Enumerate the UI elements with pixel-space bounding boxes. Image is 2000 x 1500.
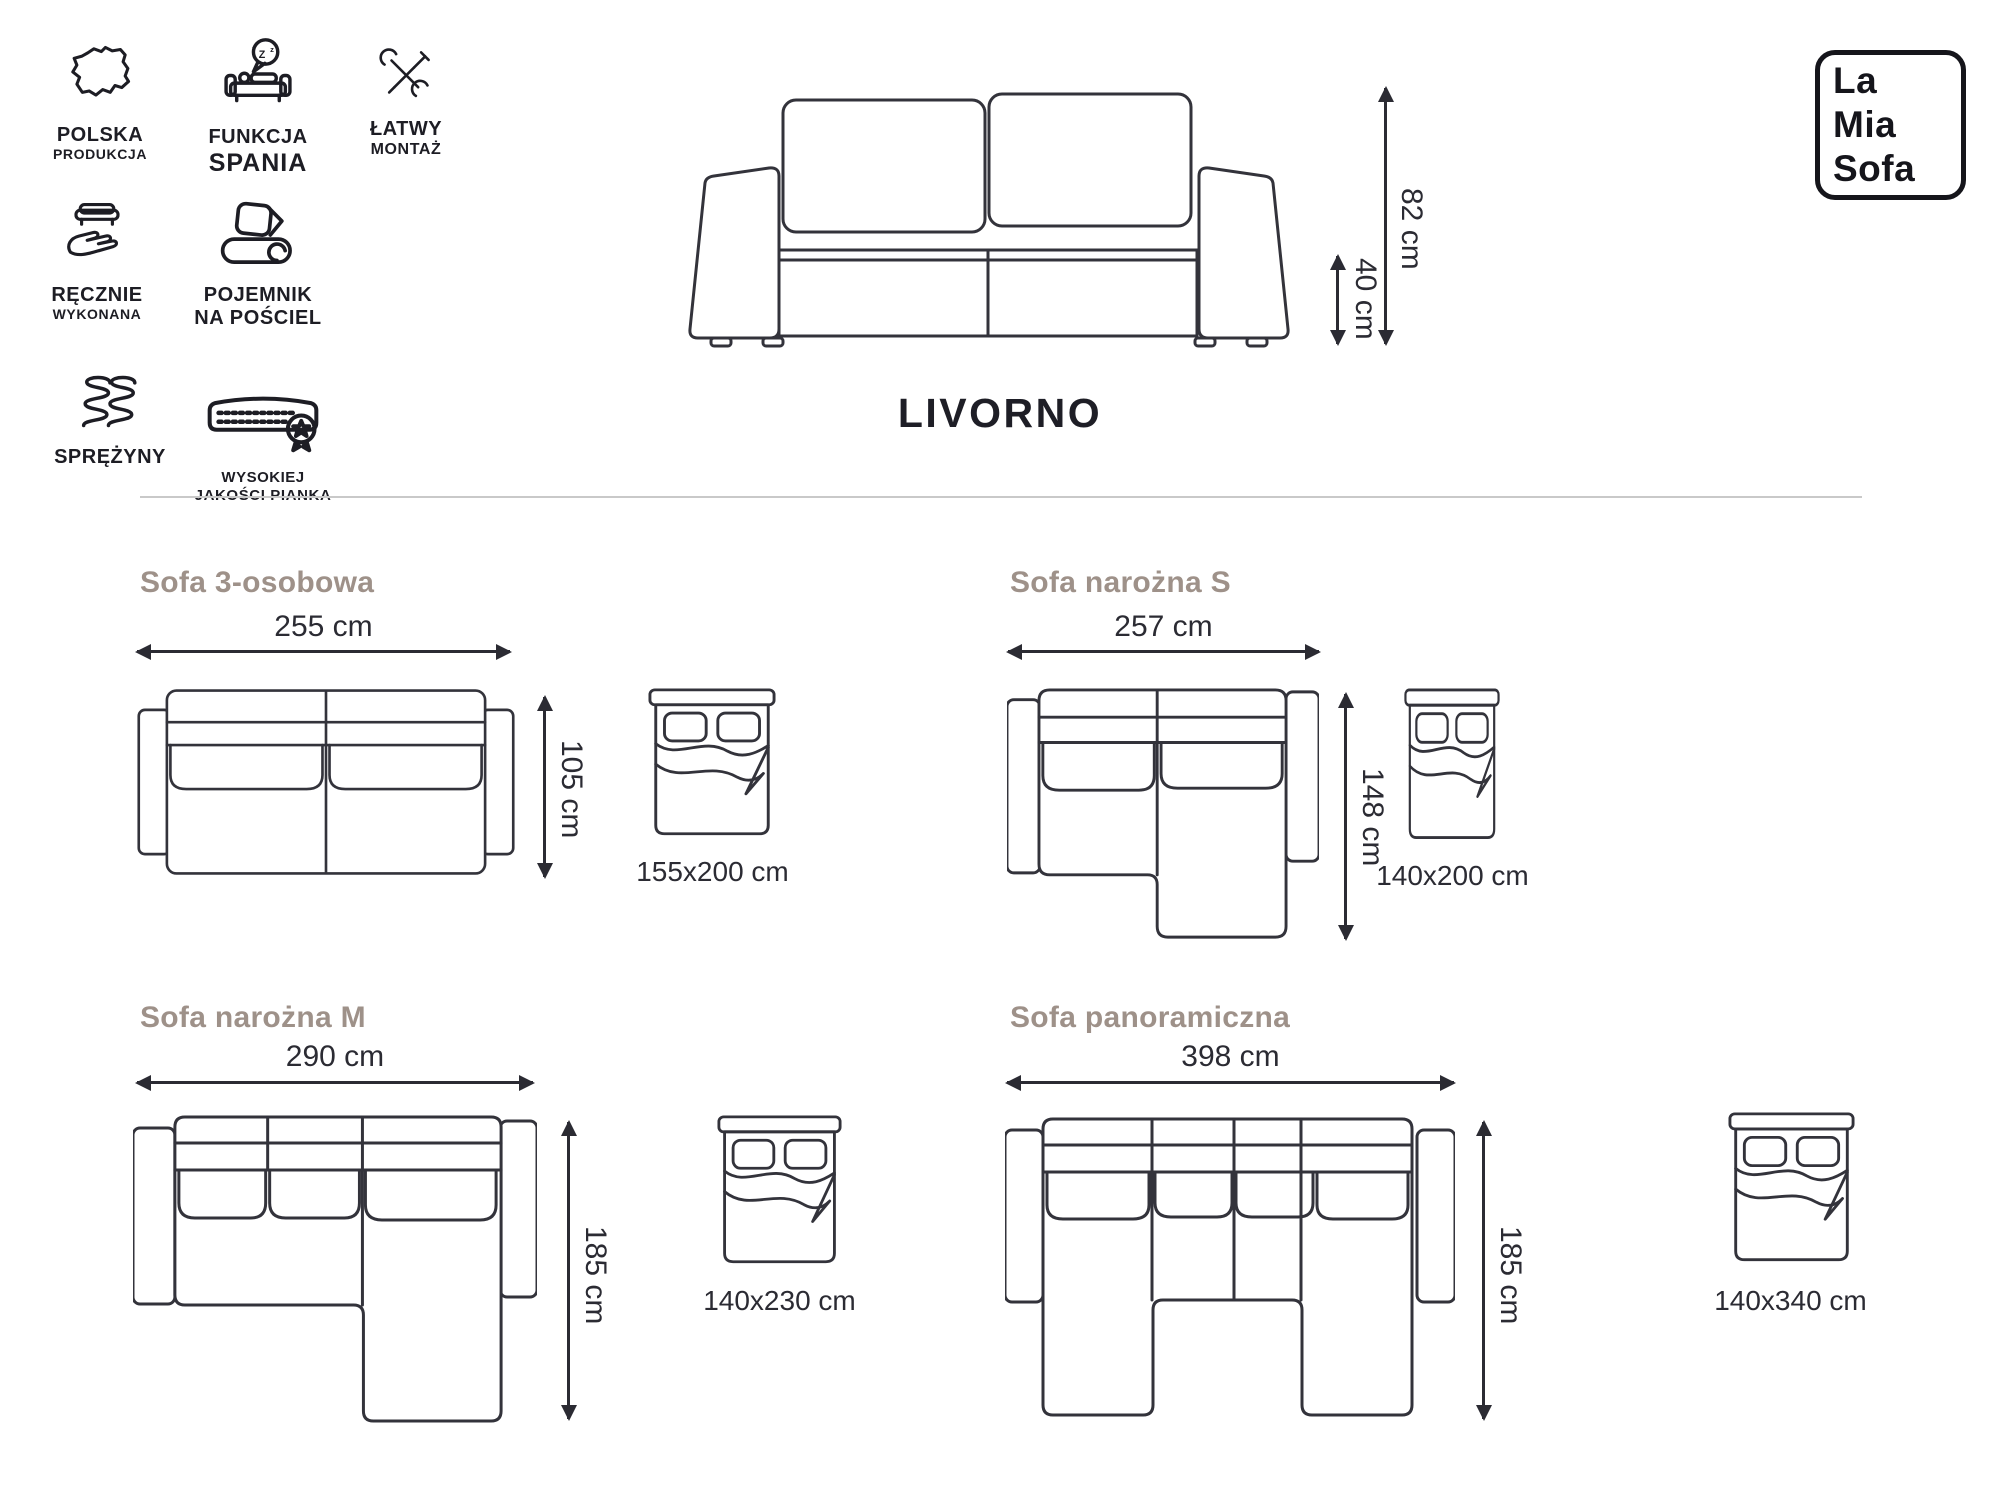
sleeping-area-label: 140x230 cm xyxy=(667,1285,892,1317)
feature-pojemnik-na-posciel: POJEMNIK NA POŚCIEL xyxy=(181,198,335,331)
feature-sublabel: MONTAŻ xyxy=(371,140,442,160)
variant-heading-3-osobowa: Sofa 3-osobowa xyxy=(140,566,374,600)
bed-icon xyxy=(1728,1112,1855,1270)
variant-heading-narozna-m: Sofa narożna M xyxy=(140,1001,366,1035)
sofa-top-view-panoramiczna xyxy=(1005,1117,1455,1417)
variant-width-arrow xyxy=(137,650,510,653)
feature-funkcja-spania: z Z z FUNKCJA SPANIA xyxy=(188,34,328,180)
la-mia-sofa-logo: La Mia Sofa xyxy=(1815,50,1966,200)
handmade-icon xyxy=(62,196,132,272)
zzz-letter: z xyxy=(270,45,274,54)
feature-sublabel: NA POŚCIEL xyxy=(194,306,322,331)
seat-height-arrow xyxy=(1336,256,1339,344)
foam-quality-icon xyxy=(193,380,333,460)
logo-line: La xyxy=(1833,59,1961,103)
poland-map-icon xyxy=(66,40,134,112)
feature-recznie-wykonana: RĘCZNIE WYKONANA xyxy=(27,196,167,324)
zzz-letter: Z xyxy=(259,49,266,61)
logo-line: Sofa xyxy=(1833,147,1961,191)
variant-width-label: 290 cm xyxy=(137,1040,533,1074)
variant-width-arrow xyxy=(1007,1081,1454,1084)
feature-sublabel: WYKONANA xyxy=(53,306,142,324)
feature-polska-produkcja: POLSKA PRODUKCJA xyxy=(30,40,170,164)
springs-icon xyxy=(76,372,144,434)
variant-width-arrow xyxy=(137,1081,533,1084)
variant-depth-arrow xyxy=(1344,694,1347,939)
variant-width-label: 257 cm xyxy=(1008,610,1319,644)
tools-icon xyxy=(377,44,435,106)
sofa-top-view-3-osobowa xyxy=(137,687,515,877)
feature-label: SPRĘŻYNY xyxy=(54,446,166,468)
feature-sprezyny: SPRĘŻYNY xyxy=(40,372,180,468)
bed-icon xyxy=(717,1115,842,1272)
variant-depth-label: 148 cm xyxy=(1355,768,1389,866)
feature-label: FUNKCJA xyxy=(208,126,307,148)
feature-label: POJEMNIK xyxy=(204,284,312,306)
feature-label: POLSKA xyxy=(57,124,143,146)
variant-width-arrow xyxy=(1008,650,1319,653)
sleeping-area-label: 140x340 cm xyxy=(1678,1285,1903,1317)
sleep-function-icon: z Z z xyxy=(220,34,296,114)
bedding-storage-icon xyxy=(212,198,304,272)
feature-label: ŁATWY xyxy=(370,118,442,140)
variant-depth-arrow xyxy=(543,697,546,877)
variant-depth-arrow xyxy=(567,1122,570,1419)
sleeping-area-label: 140x200 cm xyxy=(1355,860,1550,892)
product-title: LIVORNO xyxy=(700,390,1300,437)
variant-depth-label: 185 cm xyxy=(578,1226,612,1324)
total-height-arrow xyxy=(1384,88,1387,344)
spec-sheet: POLSKA PRODUKCJA z Z z FUNKCJA SPANIA xyxy=(0,0,2000,1500)
feature-label: WYSOKIEJ xyxy=(221,470,304,487)
total-height-label: 82 cm xyxy=(1394,188,1428,270)
feature-latwy-montaz: ŁATWY MONTAŻ xyxy=(344,44,468,160)
sofa-top-view-narozna-m xyxy=(133,1115,537,1425)
feature-sublabel: SPANIA xyxy=(209,148,308,179)
variant-depth-label: 185 cm xyxy=(1493,1226,1527,1324)
sofa-top-view-narozna-s xyxy=(1007,688,1319,941)
variant-width-label: 255 cm xyxy=(137,610,510,644)
bed-icon xyxy=(1404,688,1500,848)
variant-heading-panoramiczna: Sofa panoramiczna xyxy=(1010,1001,1290,1035)
section-divider xyxy=(140,496,1862,498)
variant-depth-label: 105 cm xyxy=(554,740,588,838)
sofa-front-view-drawing xyxy=(683,80,1295,348)
zzz-letter: z xyxy=(252,45,256,52)
variant-width-label: 398 cm xyxy=(1007,1040,1454,1074)
variant-heading-narozna-s: Sofa narożna S xyxy=(1010,566,1231,600)
feature-label: RĘCZNIE xyxy=(51,284,142,306)
feature-sublabel: PRODUKCJA xyxy=(53,146,147,164)
variant-depth-arrow xyxy=(1482,1122,1485,1419)
sleeping-area-label: 155x200 cm xyxy=(600,856,825,888)
seat-height-label: 40 cm xyxy=(1348,258,1382,340)
logo-line: Mia xyxy=(1833,103,1961,147)
feature-wysokiej-jakosci-pianka: WYSOKIEJ JAKOŚCI PIANKA xyxy=(177,380,349,506)
bed-icon xyxy=(648,688,776,844)
